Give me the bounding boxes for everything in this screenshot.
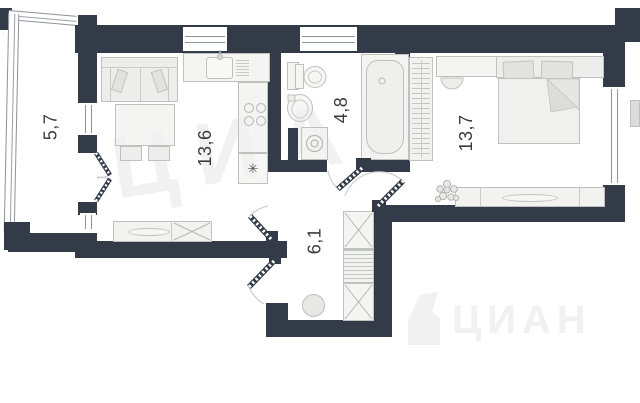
bedroom-dresser-divider-left bbox=[480, 188, 481, 206]
desk-chair-icon bbox=[441, 78, 463, 89]
snowflake-icon: ✳ bbox=[248, 161, 259, 177]
plumbing-shaft-wall bbox=[288, 128, 298, 161]
bathroom-bottom-wall-left bbox=[268, 160, 327, 172]
balcony-door-arc-top bbox=[97, 175, 110, 178]
balcony-door-leaf-bottom bbox=[96, 179, 110, 201]
dresser-section-divider bbox=[171, 222, 172, 241]
pouf bbox=[302, 294, 325, 317]
bedroom-door-arc bbox=[345, 172, 403, 196]
balcony-window-upper bbox=[80, 103, 96, 135]
bed-mattress bbox=[498, 78, 580, 144]
hall-closet-shelf-section bbox=[343, 249, 374, 283]
balcony-door-leaf-top bbox=[96, 153, 110, 175]
sofa bbox=[101, 57, 178, 102]
sofa-pillow-left bbox=[111, 69, 128, 93]
bedroom-door-leaf bbox=[378, 181, 403, 206]
sofa-armrest-right bbox=[168, 67, 169, 101]
hall-closet-bottom-section bbox=[343, 283, 374, 321]
balcony-divider-wall-mid bbox=[78, 135, 97, 153]
exterior-ledge bbox=[630, 100, 640, 127]
bathroom-window-glazing bbox=[302, 36, 355, 43]
room-label-hallway: 6,1 bbox=[295, 219, 335, 264]
bedroom-window-glazing bbox=[611, 89, 618, 183]
sofa-middle-seam bbox=[140, 67, 141, 101]
balcony-glazing-left bbox=[4, 14, 20, 232]
kitchen-drainer bbox=[236, 59, 249, 78]
balcony-door-arc-bottom bbox=[97, 177, 110, 179]
hall-closet-top-section bbox=[343, 211, 374, 249]
bathroom-bottom-wall-right bbox=[357, 160, 410, 172]
bedroom-bottom-wall bbox=[375, 205, 625, 222]
bedroom-dresser-divider-right bbox=[579, 188, 580, 206]
corner-watermark-text: ЦИАН bbox=[452, 298, 592, 343]
toilet-tank bbox=[295, 64, 304, 89]
living-room-dresser bbox=[113, 221, 212, 242]
entrance-door-leaf bbox=[249, 261, 274, 287]
bathroom-door-arc bbox=[328, 171, 338, 189]
kitchen-sink bbox=[206, 57, 233, 79]
room-label-living-room: 13,6 bbox=[185, 122, 225, 174]
living-room-bottom-wall bbox=[75, 241, 287, 258]
bedroom-dresser bbox=[455, 187, 605, 207]
entrance-door-arc bbox=[249, 287, 264, 304]
bathtub bbox=[361, 54, 409, 160]
bathtub-inner bbox=[366, 60, 404, 154]
bathroom-window bbox=[300, 27, 357, 51]
kitchen-window-glazing bbox=[185, 36, 225, 43]
balcony-window-upper-glazing bbox=[85, 105, 92, 133]
dresser-decor-dish bbox=[128, 228, 170, 236]
bedroom-dresser-decor-dish bbox=[502, 194, 558, 202]
sofa-pillow-right bbox=[151, 69, 168, 93]
room-label-balcony: 5,7 bbox=[31, 105, 71, 150]
balcony-divider-wall-upper bbox=[78, 15, 97, 103]
floor-plan: ЦИАН bbox=[0, 0, 640, 403]
bathroom-sink-icon bbox=[288, 95, 313, 122]
watermark-logo-icon bbox=[408, 292, 440, 345]
room-label-bedroom: 13,7 bbox=[446, 107, 486, 159]
wardrobe-rail-line bbox=[421, 60, 422, 158]
balcony-window-lower-glazing bbox=[85, 215, 92, 229]
room-label-bathroom: 4,8 bbox=[321, 87, 361, 133]
dining-chair-right bbox=[148, 146, 170, 161]
kitchen-counter-side bbox=[238, 82, 268, 153]
balcony-window-lower bbox=[80, 213, 96, 231]
bedroom-desk bbox=[436, 56, 500, 77]
dining-chair-left bbox=[120, 146, 142, 161]
sofa-armrest-left bbox=[110, 67, 111, 101]
bedroom-window bbox=[603, 87, 625, 185]
fridge: ✳ bbox=[238, 153, 268, 184]
kitchen-window bbox=[183, 27, 227, 51]
wardrobe bbox=[409, 57, 433, 161]
living-room-door-leaf bbox=[250, 216, 271, 239]
dining-table bbox=[115, 104, 175, 146]
living-room-door-arc bbox=[250, 206, 268, 216]
toilet-icon bbox=[304, 67, 326, 88]
hallway-right-wall bbox=[373, 205, 392, 337]
